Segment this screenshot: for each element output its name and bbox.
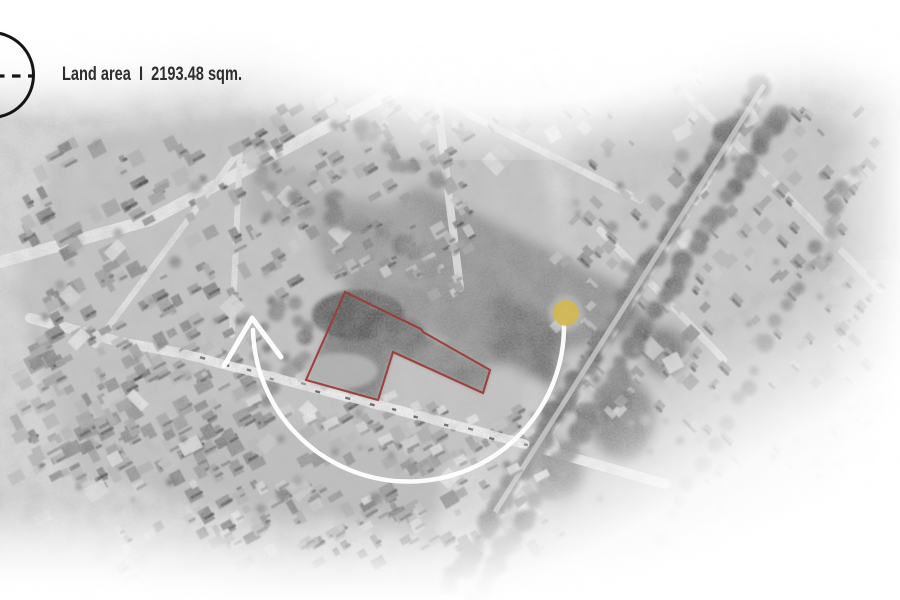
svg-text:Land area I 2193.48 sqm.: Land area I 2193.48 sqm. bbox=[62, 64, 242, 85]
